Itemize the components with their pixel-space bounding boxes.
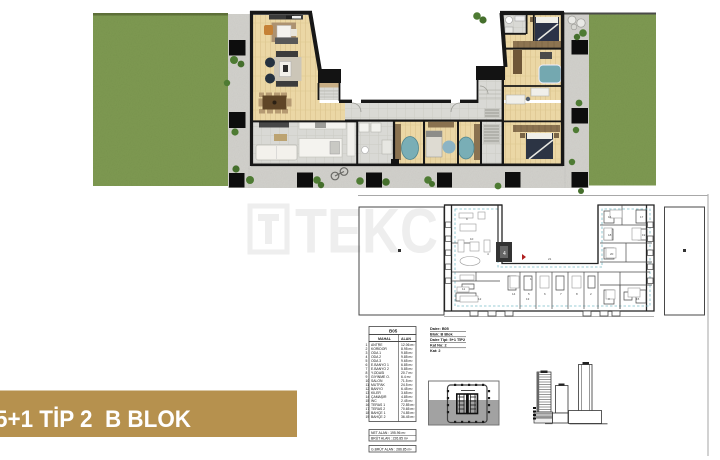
svg-text:5+1 TİP 2 B BLOK: 5+1 TİP 2 B BLOK bbox=[0, 406, 191, 433]
